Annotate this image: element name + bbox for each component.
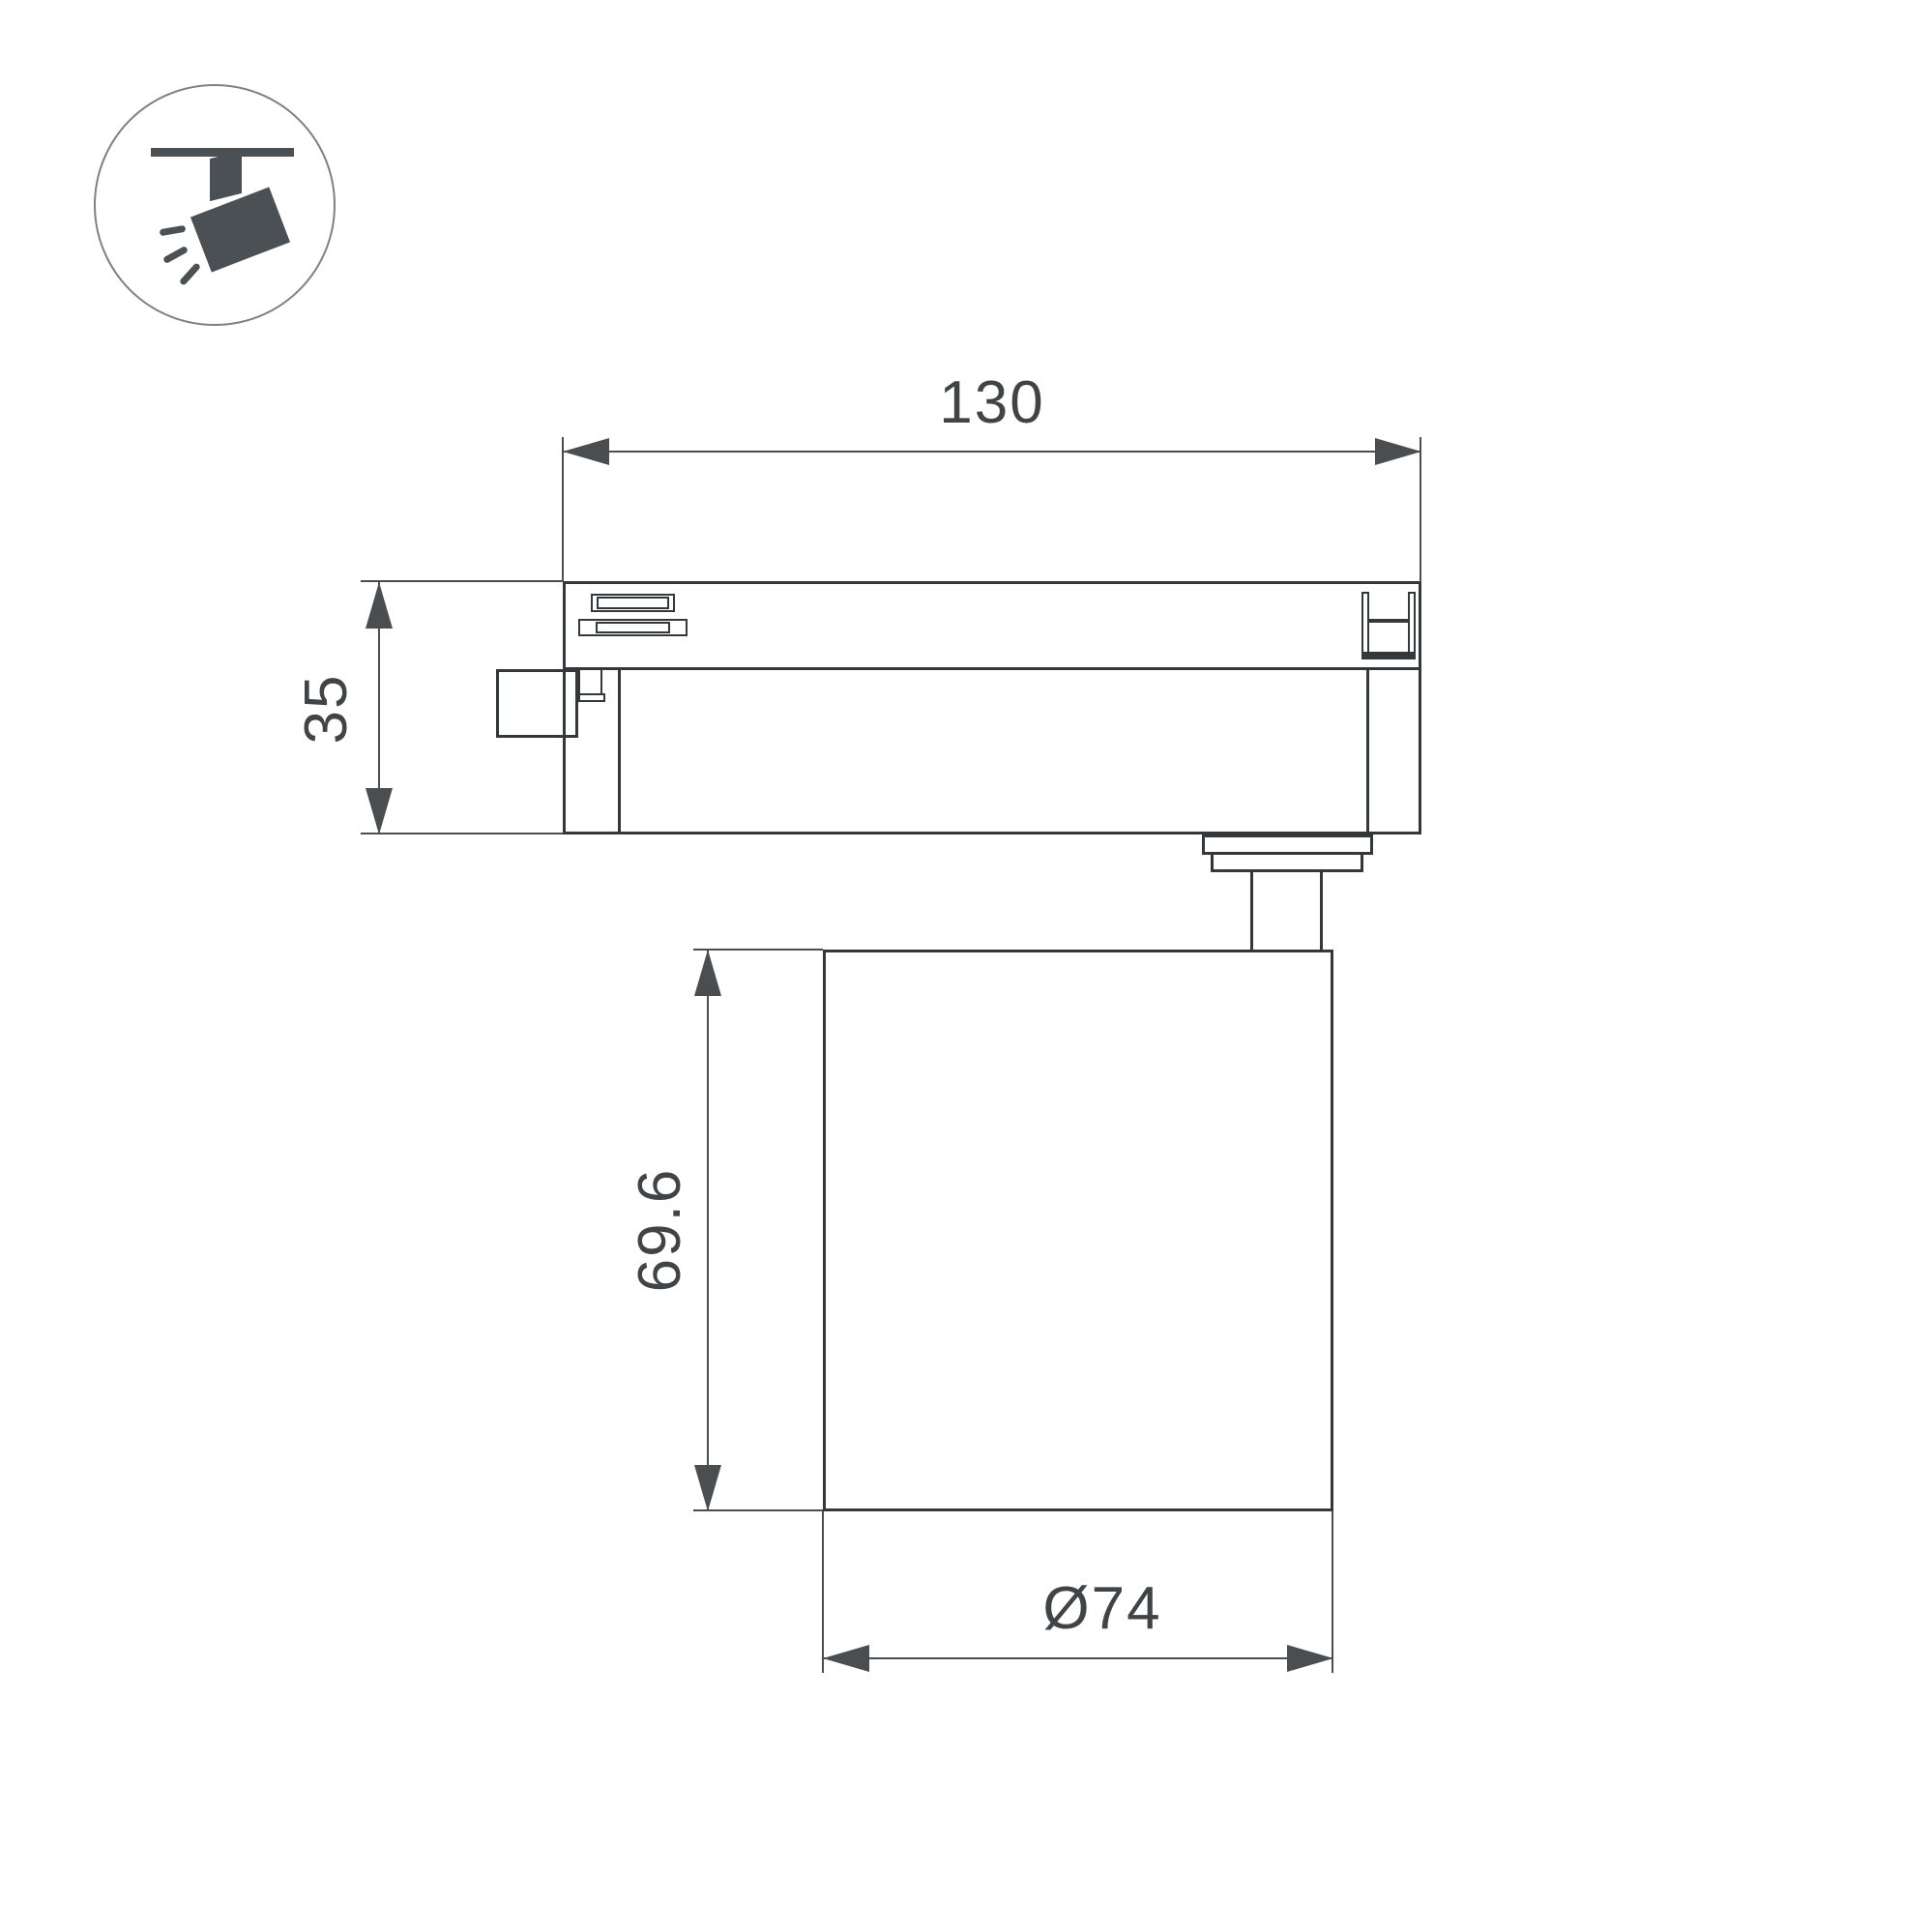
dim-74-arrow-right <box>1287 1645 1333 1672</box>
contact-pad-lower-inner <box>596 622 670 633</box>
dimension-label-adapter-height: 35 <box>292 612 362 805</box>
adapter-inner-face-line-left <box>618 670 621 834</box>
adapter-clip-wall-right <box>1408 592 1416 659</box>
dimension-label-head-height: 69.6 <box>626 1133 695 1327</box>
dim-69-arrow-down <box>694 1465 721 1511</box>
track-light-icon-badge <box>94 84 336 326</box>
dimension-label-head-diameter: Ø74 <box>996 1574 1209 1644</box>
dim-69-arrow-up <box>694 950 721 996</box>
dim-69-line <box>707 950 709 1511</box>
dim-130-arrow-left <box>563 438 609 465</box>
dim-130-line <box>563 451 1421 453</box>
dim-35-arrow-up <box>366 582 393 629</box>
swivel-stem-left-edge <box>1250 869 1253 950</box>
spotlight-head-icon <box>190 187 290 272</box>
lamp-head-outline <box>823 950 1333 1511</box>
dim-130-arrow-right <box>1375 438 1421 465</box>
swivel-stem-right-edge <box>1320 869 1323 950</box>
adapter-clip-middle-bar <box>1367 619 1410 623</box>
drawing-canvas: 130 35 69.6 Ø74 <box>0 0 1932 1932</box>
light-ray-icon <box>179 262 201 286</box>
dim-74-arrow-left <box>823 1645 869 1672</box>
mount-flange-lower <box>1211 852 1363 872</box>
adapter-clip-wall-left <box>1361 592 1369 659</box>
dim-74-line <box>823 1657 1333 1659</box>
adapter-inner-face-line-right <box>1366 670 1369 834</box>
adapter-latch-bar <box>578 693 605 702</box>
adapter-lock-tab <box>496 669 578 738</box>
contact-pad-upper-inner <box>597 597 669 609</box>
dimension-label-adapter-width: 130 <box>895 368 1089 438</box>
dim-35-arrow-down <box>366 788 393 834</box>
light-ray-icon <box>162 246 189 264</box>
adapter-clip-bottom-bar <box>1361 652 1416 659</box>
adapter-latch-notch <box>578 670 602 695</box>
track-adapter-outline <box>563 581 1421 834</box>
light-ray-icon <box>160 225 187 237</box>
adapter-step-line <box>563 667 1421 670</box>
mount-stem-icon <box>210 151 242 201</box>
